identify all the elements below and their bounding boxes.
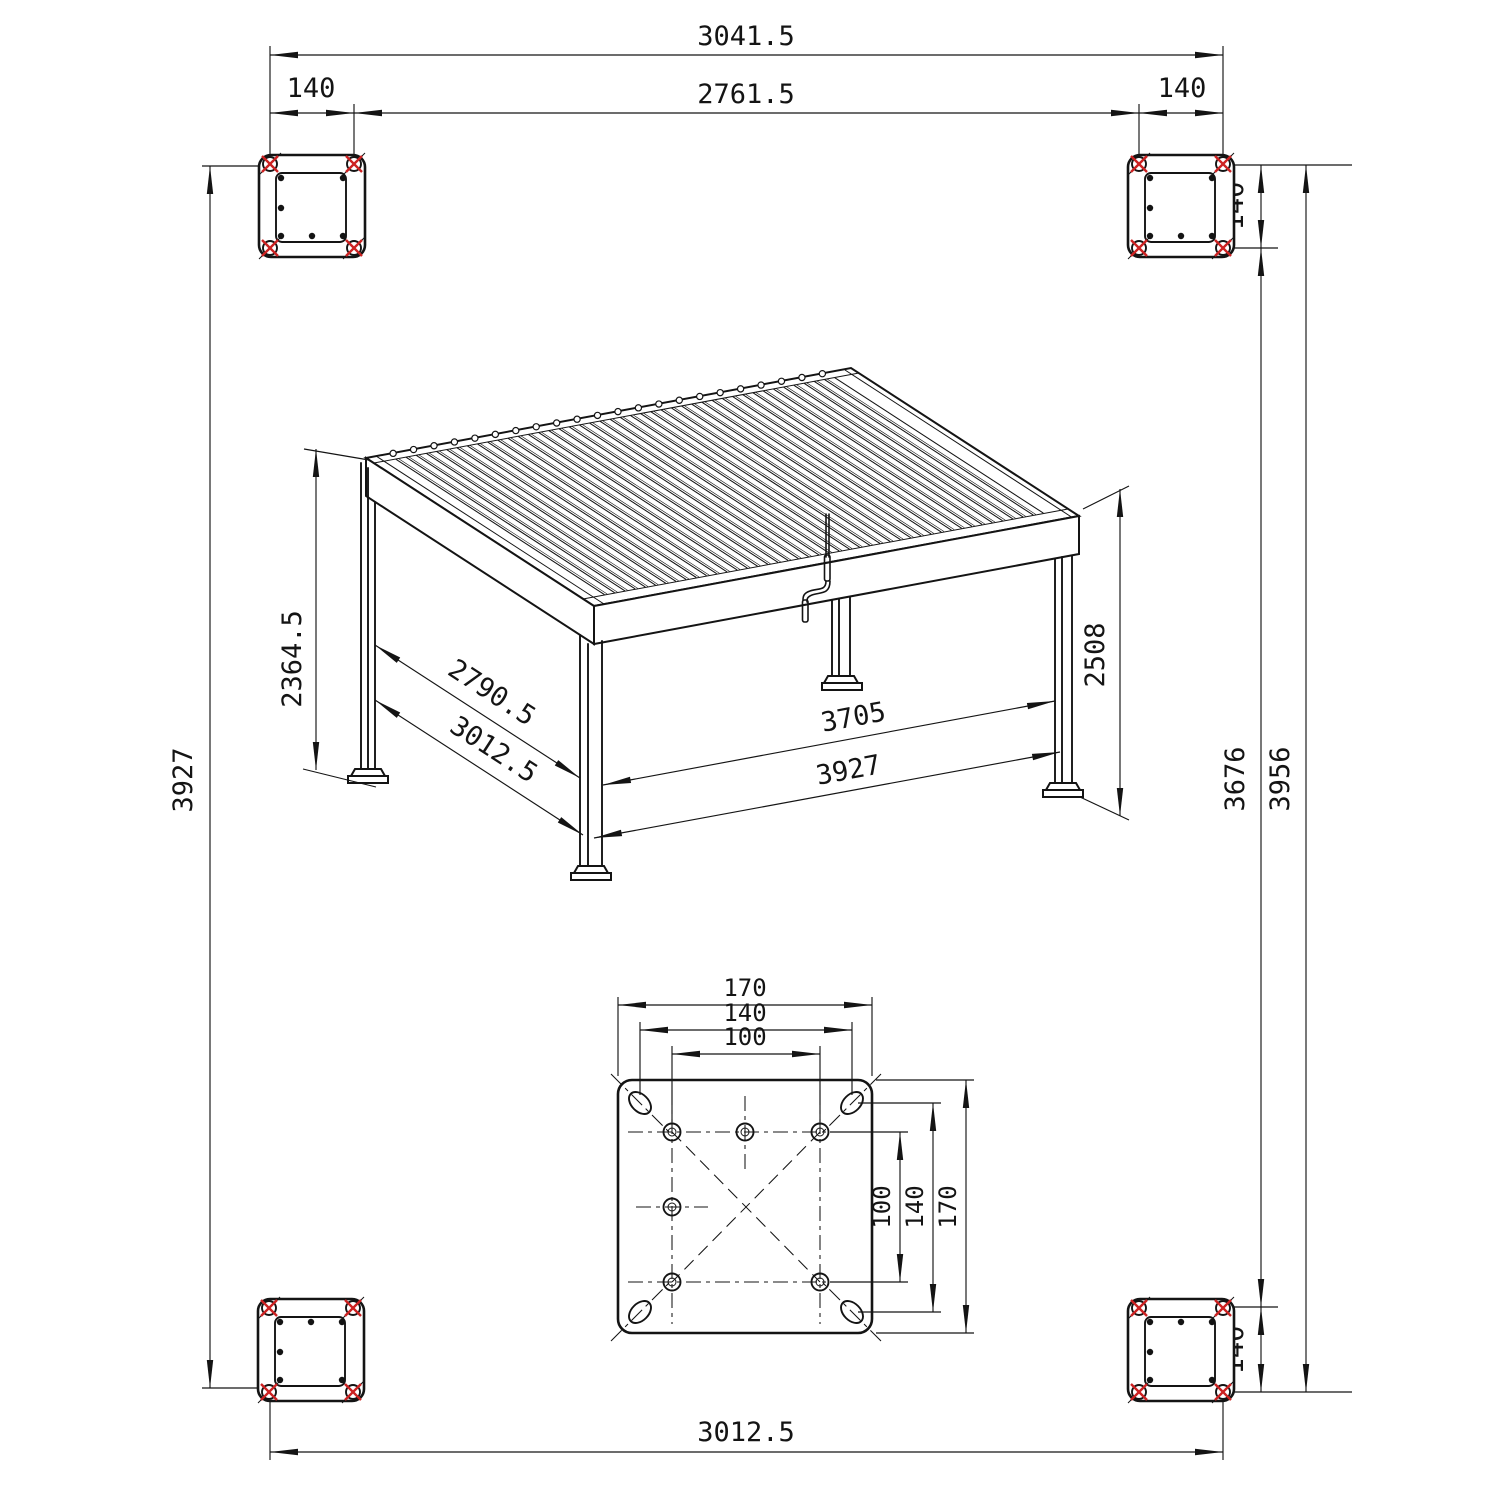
dim-top-inner: 2761.5 (697, 79, 795, 110)
anchor-bolt-marker (258, 1297, 280, 1319)
plate-bolt-dot (1209, 1319, 1215, 1325)
anchor-bolt-marker (342, 1297, 364, 1319)
louver-pivot-clip (656, 401, 662, 407)
anchor-bolt-marker (258, 1381, 280, 1403)
louver-pivot-clip (533, 424, 539, 430)
post-foot (348, 769, 388, 783)
plate-bolt-dot (1178, 1319, 1184, 1325)
anchor-bolt-marker (259, 153, 281, 175)
plate-bolt-dot (1147, 1349, 1153, 1355)
plate-bolt-dot (1147, 1377, 1153, 1383)
technical-drawing: 3041.5 2761.5 140 140 3927 140 3676 140 … (0, 0, 1500, 1500)
dim-overall-height: 2508 (1080, 622, 1111, 687)
louver-pivot-clip (513, 427, 519, 433)
post-foot (822, 676, 862, 690)
anchor-plate-bottom-left (258, 1297, 364, 1403)
dim-slot-spacing-v: 140 (901, 1185, 929, 1228)
plate-bolt-dot (278, 175, 284, 181)
anchor-bolt-marker (1128, 1297, 1150, 1319)
anchor-bolt-marker (1128, 153, 1150, 175)
plate-bolt-dot (1147, 233, 1153, 239)
louver-pivot-clip (697, 393, 703, 399)
anchor-plate-bottom-right (1128, 1297, 1234, 1403)
louver-pivot-clip (778, 378, 784, 384)
dim-span-outer: 3927 (814, 749, 884, 791)
dim-span-inner: 3705 (819, 696, 889, 738)
plate-bolt-dot (277, 1377, 283, 1383)
bottom-dimension: 3012.5 (270, 1392, 1223, 1460)
dim-left-height: 3927 (168, 747, 199, 812)
plate-bolt-dot (340, 175, 346, 181)
dim-top-offset-left: 140 (287, 73, 336, 104)
dim-right-outer: 3956 (1265, 746, 1296, 811)
rear-right-post (822, 597, 862, 690)
dim-bolt-spacing-h: 100 (723, 1023, 766, 1051)
dim-top-outer: 3041.5 (697, 21, 795, 52)
plate-bolt-dot (1147, 205, 1153, 211)
dim-top-offset-right: 140 (1158, 73, 1207, 104)
plate-bolt-dot (1147, 1319, 1153, 1325)
dim-right-inner: 3676 (1220, 746, 1251, 811)
front-center-post (571, 635, 611, 880)
anchor-bolt-marker (1128, 1381, 1150, 1403)
louver-pivot-clip (451, 439, 457, 445)
louver-pivot-clip (819, 371, 825, 377)
louver-pivot-clip (635, 405, 641, 411)
louver-pivot-clip (717, 390, 723, 396)
louver-pivot-clip (410, 446, 416, 452)
dim-bottom-width: 3012.5 (697, 1417, 795, 1448)
louver-pivot-clip (390, 450, 396, 456)
back-left-post (348, 463, 388, 783)
post-foot (571, 866, 611, 880)
right-dimensions: 140 3676 140 3956 (1219, 165, 1352, 1392)
anchor-plate-top-left (259, 153, 365, 259)
louver-pivot-clip (799, 374, 805, 380)
plate-bolt-dot (1178, 233, 1184, 239)
plate-bolt-dot (340, 233, 346, 239)
louver-pivot-clip (615, 409, 621, 415)
louver-pivot-clip (492, 431, 498, 437)
plate-bolt-dot (309, 233, 315, 239)
anchor-bolt-marker (343, 153, 365, 175)
louver-pivot-clip (594, 412, 600, 418)
plate-bolt-dot (278, 205, 284, 211)
anchor-bolt-marker (1212, 237, 1234, 259)
anchor-bolt-marker (1212, 1297, 1234, 1319)
top-dimensions: 3041.5 2761.5 140 140 (270, 21, 1223, 158)
anchor-plate-top-right (1128, 153, 1234, 259)
anchor-bolt-marker (343, 237, 365, 259)
dim-bolt-spacing-v: 100 (868, 1185, 896, 1228)
dim-plate-size-h: 170 (723, 974, 766, 1002)
drawing-sheet: 3041.5 2761.5 140 140 3927 140 3676 140 … (0, 0, 1500, 1500)
pergola-isometric-view: 2364.5 2508 2790.5 3012.5 3705 3927 (277, 368, 1129, 880)
plate-bolt-dot (278, 233, 284, 239)
plate-bolt-dot (308, 1319, 314, 1325)
plate-bolt-dot (339, 1319, 345, 1325)
louver-pivot-clip (574, 416, 580, 422)
anchor-bolt-marker (1128, 237, 1150, 259)
louver-pivot-clip (472, 435, 478, 441)
louver-pivot-clip (737, 386, 743, 392)
plate-bolt-dot (339, 1377, 345, 1383)
plate-bolt-dot (1209, 233, 1215, 239)
louver-pivot-clip (676, 397, 682, 403)
plate-bolt-dot (1209, 1377, 1215, 1383)
plate-bolt-dot (1147, 175, 1153, 181)
plate-bolt-dot (277, 1349, 283, 1355)
post-foot (1043, 783, 1083, 797)
dim-line-depth-outer (375, 700, 583, 835)
louver-pivot-clip (758, 382, 764, 388)
louver-pivot-clip (554, 420, 560, 426)
anchor-bolt-marker (342, 1381, 364, 1403)
dim-post-height: 2364.5 (277, 610, 308, 708)
left-dimension: 3927 (168, 166, 259, 1388)
anchor-bolt-marker (1212, 1381, 1234, 1403)
front-right-post (1043, 556, 1083, 797)
base-plate-detail: 170 140 100 170 140 100 (611, 974, 974, 1341)
louver-pivot-clip (431, 443, 437, 449)
anchor-bolt-marker (259, 237, 281, 259)
anchor-bolt-marker (1212, 153, 1234, 175)
dim-plate-size-v: 170 (934, 1185, 962, 1228)
plate-bolt-dot (1209, 175, 1215, 181)
plate-bolt-dot (277, 1319, 283, 1325)
